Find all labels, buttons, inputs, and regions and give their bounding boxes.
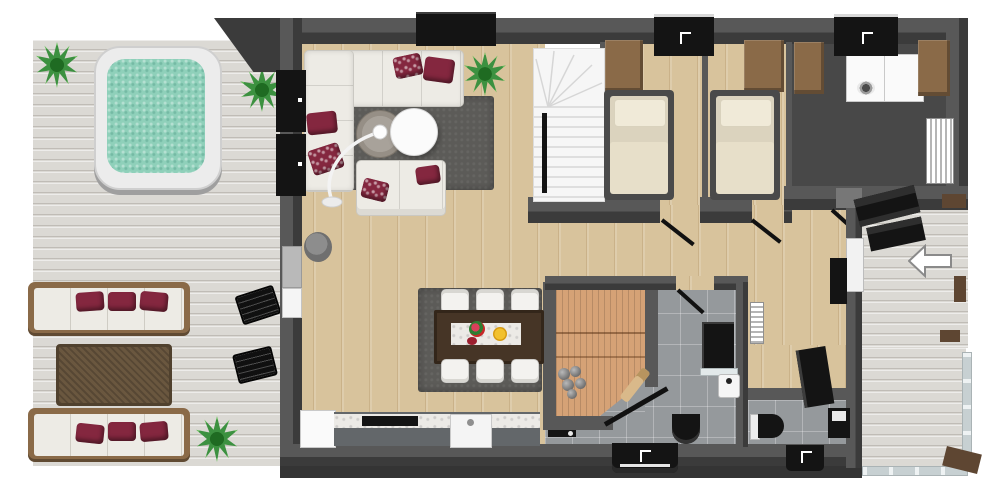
media-cabinet (276, 70, 306, 132)
hot-tub-water (107, 59, 205, 173)
wall-vanity-sink (834, 14, 898, 56)
sofa-pillow (422, 56, 455, 84)
sofa-pillow (75, 423, 105, 445)
radiator (926, 118, 954, 184)
wc-vanity (786, 445, 824, 471)
faucet-icon (680, 32, 691, 44)
sofa-pillow (415, 164, 441, 185)
sofa-pillow (108, 422, 136, 441)
serving-window (282, 288, 302, 318)
sauna-wall-bottom (543, 416, 613, 430)
wall-bottom-face (280, 466, 862, 478)
outdoor-coffee-table (56, 344, 172, 406)
bathroom-vanity (612, 443, 678, 473)
dining-chair (511, 359, 539, 383)
washer (846, 54, 886, 102)
basin-bowl (832, 411, 846, 421)
cooktop (362, 416, 418, 426)
entry-door-opening (846, 238, 864, 292)
wall-bedroom2-utility (786, 42, 792, 190)
utility-cabinet (794, 42, 824, 94)
porch-post (940, 330, 960, 342)
wall-bottom (280, 444, 862, 468)
hot-tub (94, 46, 222, 190)
sink-faucet (467, 419, 474, 426)
shower-head (568, 431, 573, 436)
cabinet-handle (298, 162, 302, 166)
sauna-stone (570, 366, 581, 377)
washer-drum (857, 81, 875, 95)
wardrobe (744, 40, 784, 92)
bed-pillow (614, 99, 666, 127)
media-cabinet (276, 134, 306, 196)
plate (467, 337, 477, 345)
shoe-cabinet (830, 258, 847, 304)
corner-sink (718, 374, 740, 398)
wall-bathroom-right (736, 282, 748, 447)
sink-faucet (726, 378, 732, 384)
sofa-pillow (108, 292, 136, 311)
staircase (533, 48, 605, 202)
utility-cabinet (918, 40, 950, 96)
kitchen-sink (450, 414, 492, 448)
sauna-stone (575, 378, 586, 389)
wall-bathroom-top (545, 276, 748, 290)
wc-washbasin (828, 408, 850, 438)
stair-handrail (542, 113, 547, 193)
outdoor-sofa (28, 282, 190, 336)
porch-post (942, 194, 966, 208)
dining-table (434, 310, 544, 364)
wall-bedroom1-bedroom2 (702, 42, 708, 200)
stool (304, 232, 332, 262)
entry-direction-arrow (908, 244, 952, 278)
kitchen-counter (334, 412, 540, 446)
dining-chair (476, 359, 504, 383)
fridge (300, 410, 336, 448)
table-runner (451, 323, 521, 345)
bed-pillow (720, 99, 772, 127)
shower (702, 322, 734, 370)
outdoor-sofa (28, 408, 190, 462)
sauna-wall-left (543, 282, 556, 430)
faucet-icon (640, 450, 651, 462)
shower-rail (548, 430, 576, 437)
sauna-stone (567, 389, 577, 399)
wc-toilet (758, 414, 784, 438)
sauna-bench-edge (556, 332, 645, 334)
fruit-bowl (493, 327, 507, 341)
wall-tv (416, 12, 496, 46)
dining-chair (441, 359, 469, 383)
wall-vanity-sink (654, 14, 714, 56)
flower-vase (469, 321, 485, 337)
sofa-pillow (139, 291, 169, 312)
porch-post (954, 276, 966, 302)
sauna-bench-edge (556, 356, 645, 358)
single-bed (710, 90, 780, 200)
faucet-icon (862, 32, 873, 44)
sofa-pillow (139, 421, 169, 442)
sofa-pillow (75, 291, 104, 312)
cabinet-handle (298, 98, 302, 102)
towel-bar (620, 464, 670, 467)
wardrobe (605, 40, 643, 92)
arc-floor-lamp (318, 116, 402, 212)
hall-radiator (750, 302, 764, 344)
floorplan-canvas (0, 0, 1000, 483)
wall-hung-toilet (672, 414, 700, 444)
bathroom-door-opening (676, 276, 714, 290)
single-bed (604, 90, 674, 200)
wall-bedroom1-bottom (700, 197, 752, 223)
patio-door (282, 246, 302, 288)
faucet-icon (801, 451, 812, 463)
